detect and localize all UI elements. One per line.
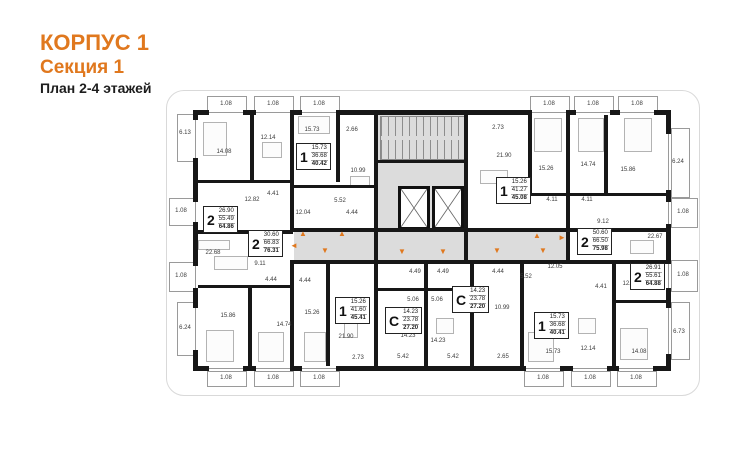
window <box>532 110 566 115</box>
table <box>436 318 454 334</box>
window <box>193 120 198 158</box>
unit-areas: 15.7336.6840.41 <box>549 314 566 337</box>
window <box>193 308 198 350</box>
window <box>302 366 336 371</box>
window <box>209 366 243 371</box>
room-area-label: 1.08 <box>220 101 232 107</box>
floor-plan: 6.1314.0812.1415.732.6610.9912.824.4112.… <box>0 0 740 472</box>
unit-areas: 15.7336.6840.42 <box>311 145 328 168</box>
unit-area-value: 15.73 <box>311 145 328 152</box>
entrance-arrow-icon: ► <box>558 234 566 242</box>
room-area-label: 5.52 <box>334 198 346 204</box>
room-area-label: 5.52 <box>520 274 532 280</box>
room-area-label: 9.12 <box>597 219 609 225</box>
room-area-label: 2.65 <box>497 354 509 360</box>
entrance-arrow-icon: ▼ <box>493 247 501 255</box>
room-area-label: 15.26 <box>304 310 319 316</box>
unit-type: С <box>456 293 466 307</box>
counter <box>198 240 230 250</box>
room-area-label: 22.67 <box>647 234 662 240</box>
room-area-label: 12.14 <box>580 346 595 352</box>
wall <box>290 112 294 232</box>
elevator-x-icon <box>435 189 461 227</box>
room-area-label: 2.73 <box>352 355 364 361</box>
elevator-shaft <box>432 186 464 230</box>
unit-type: 1 <box>300 150 308 164</box>
room-area-label: 6.73 <box>673 329 685 335</box>
unit-area-value: 40.42 <box>311 161 328 168</box>
room-area-label: 1.08 <box>175 273 187 279</box>
entrance-arrow-icon: ▼ <box>321 247 329 255</box>
room-area-label: 6.13 <box>179 130 191 136</box>
wall <box>612 300 668 303</box>
wall <box>196 180 292 183</box>
window <box>256 110 290 115</box>
room-area-label: 1.08 <box>313 375 325 381</box>
room-area-label: 4.41 <box>595 284 607 290</box>
window <box>666 264 671 288</box>
unit-area-value: 40.41 <box>549 330 566 337</box>
room-area-label: 1.08 <box>584 375 596 381</box>
table <box>578 318 596 334</box>
wall <box>464 112 468 262</box>
bed <box>578 118 604 152</box>
wall <box>528 193 668 196</box>
entrance-arrow-icon: ▼ <box>539 247 547 255</box>
room-area-label: 15.73 <box>545 349 560 355</box>
unit-info-box: 115.2641.6045.41 <box>335 297 370 324</box>
floor-plan-page: КОРПУС 1 Секция 1 План 2-4 этажей <box>0 0 740 472</box>
room-area-label: 6.24 <box>672 159 684 165</box>
room-area-label: 12.04 <box>295 210 310 216</box>
entrance-arrow-icon: ▲ <box>533 232 541 240</box>
unit-areas: 15.2641.2745.08 <box>511 179 528 202</box>
bed <box>206 330 234 362</box>
room-area-label: 5.42 <box>447 354 459 360</box>
wall <box>378 160 464 163</box>
unit-info-box: 230.6066.8376.31 <box>248 230 283 257</box>
room-area-label: 5.06 <box>431 297 443 303</box>
room-area-label: 14.08 <box>216 149 231 155</box>
room-area-label: 1.08 <box>267 375 279 381</box>
wall <box>292 185 376 188</box>
sofa <box>214 256 248 270</box>
wall <box>336 112 340 182</box>
room-area-label: 9.11 <box>254 261 265 267</box>
window <box>666 134 671 190</box>
room-area-label: 15.26 <box>538 166 553 172</box>
wall <box>612 264 616 368</box>
wall <box>374 262 378 368</box>
window <box>302 110 336 115</box>
wall <box>250 112 254 182</box>
stairs <box>380 116 466 160</box>
entrance-arrow-icon: ◄ <box>290 242 298 250</box>
window <box>666 308 671 354</box>
wall <box>196 285 293 288</box>
window <box>573 366 607 371</box>
unit-area-value: 27.20 <box>469 304 486 311</box>
room-area-label: 21.90 <box>496 153 511 159</box>
unit-type: 2 <box>634 270 642 284</box>
unit-area-value: 76.31 <box>263 248 280 255</box>
window <box>209 110 243 115</box>
room-area-label: 10.99 <box>350 168 365 174</box>
window <box>619 366 653 371</box>
room-area-label: 21.90 <box>338 334 353 340</box>
bed <box>534 118 562 152</box>
bed <box>620 328 648 360</box>
room-area-label: 4.11 <box>581 197 592 203</box>
wall <box>248 287 252 368</box>
window <box>193 266 198 288</box>
window <box>666 202 671 224</box>
wall <box>326 262 330 368</box>
unit-area-value: 66.83 <box>263 239 280 248</box>
room-area-label: 15.86 <box>620 167 635 173</box>
unit-info-box: С14.2323.7827.20 <box>452 286 489 313</box>
room-area-label: 12.14 <box>260 135 275 141</box>
unit-area-value: 64.86 <box>218 224 235 231</box>
room-area-label: 5.42 <box>397 354 409 360</box>
unit-area-value: 50.60 <box>592 230 609 237</box>
room-area-label: 4.44 <box>492 269 504 275</box>
unit-area-value: 36.68 <box>549 321 566 330</box>
entrance-arrow-icon: ▼ <box>439 248 447 256</box>
room-area-label: 1.08 <box>631 101 643 107</box>
unit-areas: 30.6066.8376.31 <box>263 232 280 255</box>
window <box>576 110 610 115</box>
unit-area-value: 26.90 <box>218 208 235 215</box>
room-area-label: 1.08 <box>220 375 232 381</box>
unit-type: 2 <box>207 213 215 227</box>
window <box>193 202 198 222</box>
bed <box>624 118 652 152</box>
unit-area-value: 15.26 <box>350 299 367 306</box>
unit-area-value: 55.61 <box>645 272 662 281</box>
room-area-label: 4.49 <box>437 269 449 275</box>
entrance-arrow-icon: ▼ <box>398 248 406 256</box>
unit-area-value: 23.78 <box>469 295 486 304</box>
room-area-label: 22.68 <box>205 250 220 256</box>
room-area-label: 1.08 <box>537 375 549 381</box>
unit-area-value: 55.49 <box>218 215 235 224</box>
unit-type: 1 <box>339 304 347 318</box>
room-area-label: 6.24 <box>179 325 191 331</box>
room-area-label: 1.08 <box>267 101 279 107</box>
table <box>262 142 282 158</box>
unit-area-value: 15.73 <box>549 314 566 321</box>
room-area-label: 1.08 <box>677 272 689 278</box>
unit-info-box: 226.9055.4964.86 <box>203 206 238 233</box>
room-area-label: 15.86 <box>220 313 235 319</box>
stairs-landing <box>381 136 465 140</box>
elevator-shaft <box>398 186 430 230</box>
window <box>256 366 290 371</box>
room-area-label: 1.08 <box>677 209 689 215</box>
window <box>526 366 560 371</box>
unit-area-value: 45.08 <box>511 195 528 202</box>
unit-area-value: 27.20 <box>402 325 419 332</box>
room-area-label: 5.06 <box>407 297 419 303</box>
room-area-label: 10.99 <box>494 305 509 311</box>
unit-type: С <box>389 314 399 328</box>
room-area-label: 14.23 <box>430 338 445 344</box>
unit-area-value: 41.27 <box>511 186 528 195</box>
unit-type: 2 <box>581 235 589 249</box>
unit-areas: 26.9155.6164.88 <box>645 265 662 288</box>
unit-area-value: 26.91 <box>645 265 662 272</box>
room-area-label: 4.49 <box>409 269 421 275</box>
wall <box>566 112 570 262</box>
unit-area-value: 64.88 <box>645 281 662 288</box>
unit-area-value: 14.23 <box>469 288 486 295</box>
unit-area-value: 66.50 <box>592 237 609 246</box>
room-area-label: 14.74 <box>580 162 595 168</box>
unit-info-box: 115.7336.6840.42 <box>296 143 331 170</box>
unit-area-value: 45.41 <box>350 315 367 322</box>
entrance-arrow-icon: ▲ <box>338 230 346 238</box>
room-area-label: 4.41 <box>267 191 279 197</box>
unit-areas: 14.2323.7827.20 <box>469 288 486 311</box>
wall <box>470 262 474 368</box>
room-area-label: 4.11 <box>546 197 557 203</box>
unit-info-box: 115.7336.6840.41 <box>534 312 569 339</box>
corridor-area <box>294 230 566 262</box>
unit-area-value: 36.68 <box>311 152 328 161</box>
room-area-label: 2.73 <box>492 125 504 131</box>
wall <box>424 262 428 368</box>
table <box>630 240 654 254</box>
room-area-label: 14.08 <box>631 349 646 355</box>
room-area-label: 14.74 <box>276 322 291 328</box>
elevator-x-icon <box>401 189 427 227</box>
unit-type: 2 <box>252 237 260 251</box>
entrance-arrow-icon: ▲ <box>299 230 307 238</box>
room-area-label: 15.73 <box>304 127 319 133</box>
unit-area-value: 75.98 <box>592 246 609 253</box>
room-area-label: 1.08 <box>630 375 642 381</box>
unit-type: 1 <box>538 319 546 333</box>
unit-type: 1 <box>500 184 508 198</box>
room-area-label: 12.05 <box>547 264 562 270</box>
unit-area-value: 14.23 <box>402 309 419 316</box>
unit-info-box: 115.2641.2745.08 <box>496 177 531 204</box>
room-area-label: 4.44 <box>346 210 358 216</box>
unit-areas: 14.2323.7827.20 <box>402 309 419 332</box>
room-area-label: 1.08 <box>175 208 187 214</box>
room-area-label: 1.08 <box>587 101 599 107</box>
window <box>620 110 654 115</box>
unit-areas: 26.9055.4964.86 <box>218 208 235 231</box>
room-area-label: 1.08 <box>543 101 555 107</box>
room-area-label: 1.08 <box>313 101 325 107</box>
room-area-label: 2.66 <box>346 127 358 133</box>
unit-info-box: 226.9155.6164.88 <box>630 263 665 290</box>
bed <box>304 332 326 362</box>
unit-areas: 50.6066.5075.98 <box>592 230 609 253</box>
unit-area-value: 23.78 <box>402 316 419 325</box>
unit-info-box: 250.6066.5075.98 <box>577 228 612 255</box>
unit-area-value: 41.60 <box>350 306 367 315</box>
wall <box>290 260 294 368</box>
unit-area-value: 15.26 <box>511 179 528 186</box>
wall <box>604 112 608 195</box>
unit-areas: 15.2641.6045.41 <box>350 299 367 322</box>
room-area-label: 12.82 <box>244 197 259 203</box>
unit-info-box: С14.2323.7827.20 <box>385 307 422 334</box>
room-area-label: 4.44 <box>265 277 277 283</box>
bed <box>258 332 284 362</box>
unit-area-value: 30.60 <box>263 232 280 239</box>
room-area-label: 4.44 <box>299 278 311 284</box>
